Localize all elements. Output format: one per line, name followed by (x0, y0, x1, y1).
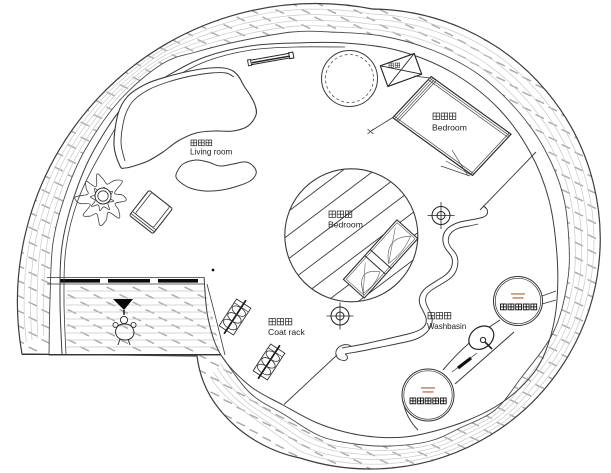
svg-text:Coat rack: Coat rack (268, 327, 305, 337)
svg-text:Bedroom: Bedroom (432, 123, 467, 133)
svg-text:Bedroom: Bedroom (328, 220, 363, 230)
svg-text:Washbasin: Washbasin (427, 322, 466, 331)
svg-text:Living room: Living room (190, 148, 233, 157)
